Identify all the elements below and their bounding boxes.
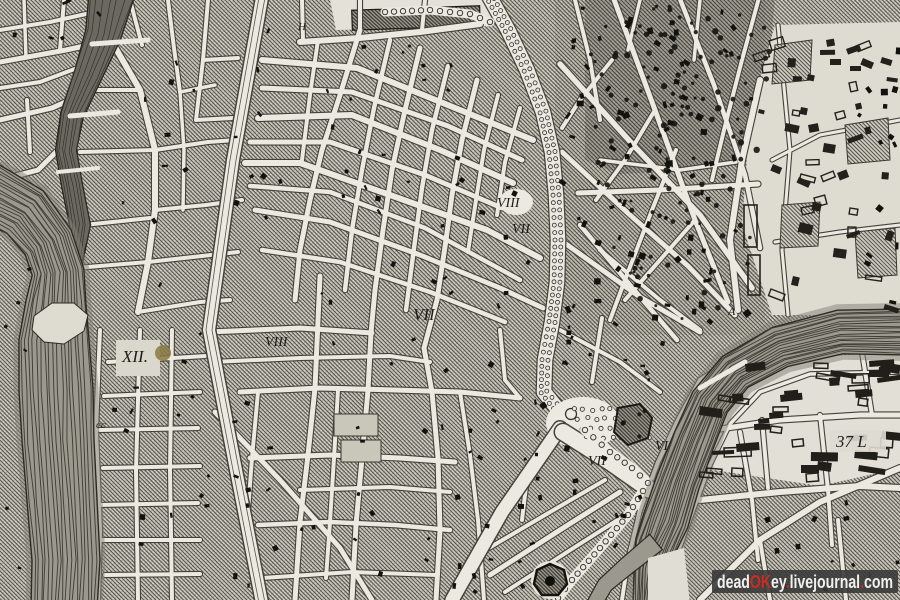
svg-text:VIII: VIII xyxy=(497,196,521,211)
svg-text:VII: VII xyxy=(413,305,436,324)
svg-text:VII: VII xyxy=(512,222,531,237)
svg-text:XII.: XII. xyxy=(121,347,148,366)
svg-text:VII: VII xyxy=(588,454,607,469)
svg-text:37 L: 37 L xyxy=(835,432,867,451)
svg-text:VIII: VIII xyxy=(265,335,289,350)
svg-text:cc: cc xyxy=(96,419,106,431)
svg-text:VI: VI xyxy=(655,439,670,454)
svg-text:H: H xyxy=(297,21,307,33)
svg-text:deadOKey.livejournal.com: deadOKey.livejournal.com xyxy=(717,572,893,592)
svg-text:A: A xyxy=(727,304,736,318)
